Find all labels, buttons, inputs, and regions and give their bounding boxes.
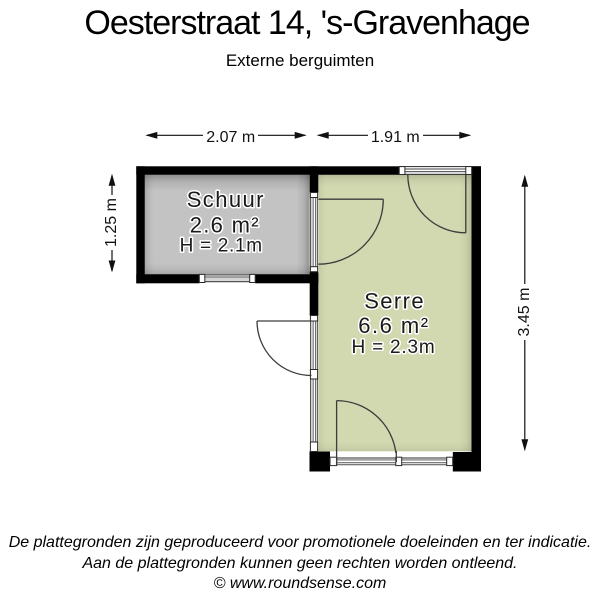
svg-text:2.6 m²: 2.6 m² — [190, 213, 260, 238]
svg-text:De plattegronden zijn geproduc: De plattegronden zijn geproduceerd voor … — [9, 534, 592, 551]
svg-text:6.6 m²: 6.6 m² — [358, 313, 429, 338]
svg-text:1.25 m: 1.25 m — [103, 198, 120, 247]
svg-text:3.45 m: 3.45 m — [516, 288, 533, 337]
svg-text:H = 2.1m: H = 2.1m — [180, 236, 263, 257]
svg-text:2.07 m: 2.07 m — [206, 129, 255, 146]
svg-text:Serre: Serre — [364, 289, 425, 314]
svg-text:1.91 m: 1.91 m — [371, 129, 420, 146]
svg-text:© www.roundsense.com: © www.roundsense.com — [214, 575, 387, 592]
svg-text:Oesterstraat 14, 's-Gravenhage: Oesterstraat 14, 's-Gravenhage — [84, 4, 529, 42]
svg-text:H = 2.3m: H = 2.3m — [351, 337, 435, 358]
svg-text:Schuur: Schuur — [187, 187, 265, 212]
svg-text:Externe berguimten: Externe berguimten — [226, 51, 374, 70]
svg-text:Aan de plattegronden kunnen ge: Aan de plattegronden kunnen geen rechten… — [81, 555, 517, 572]
